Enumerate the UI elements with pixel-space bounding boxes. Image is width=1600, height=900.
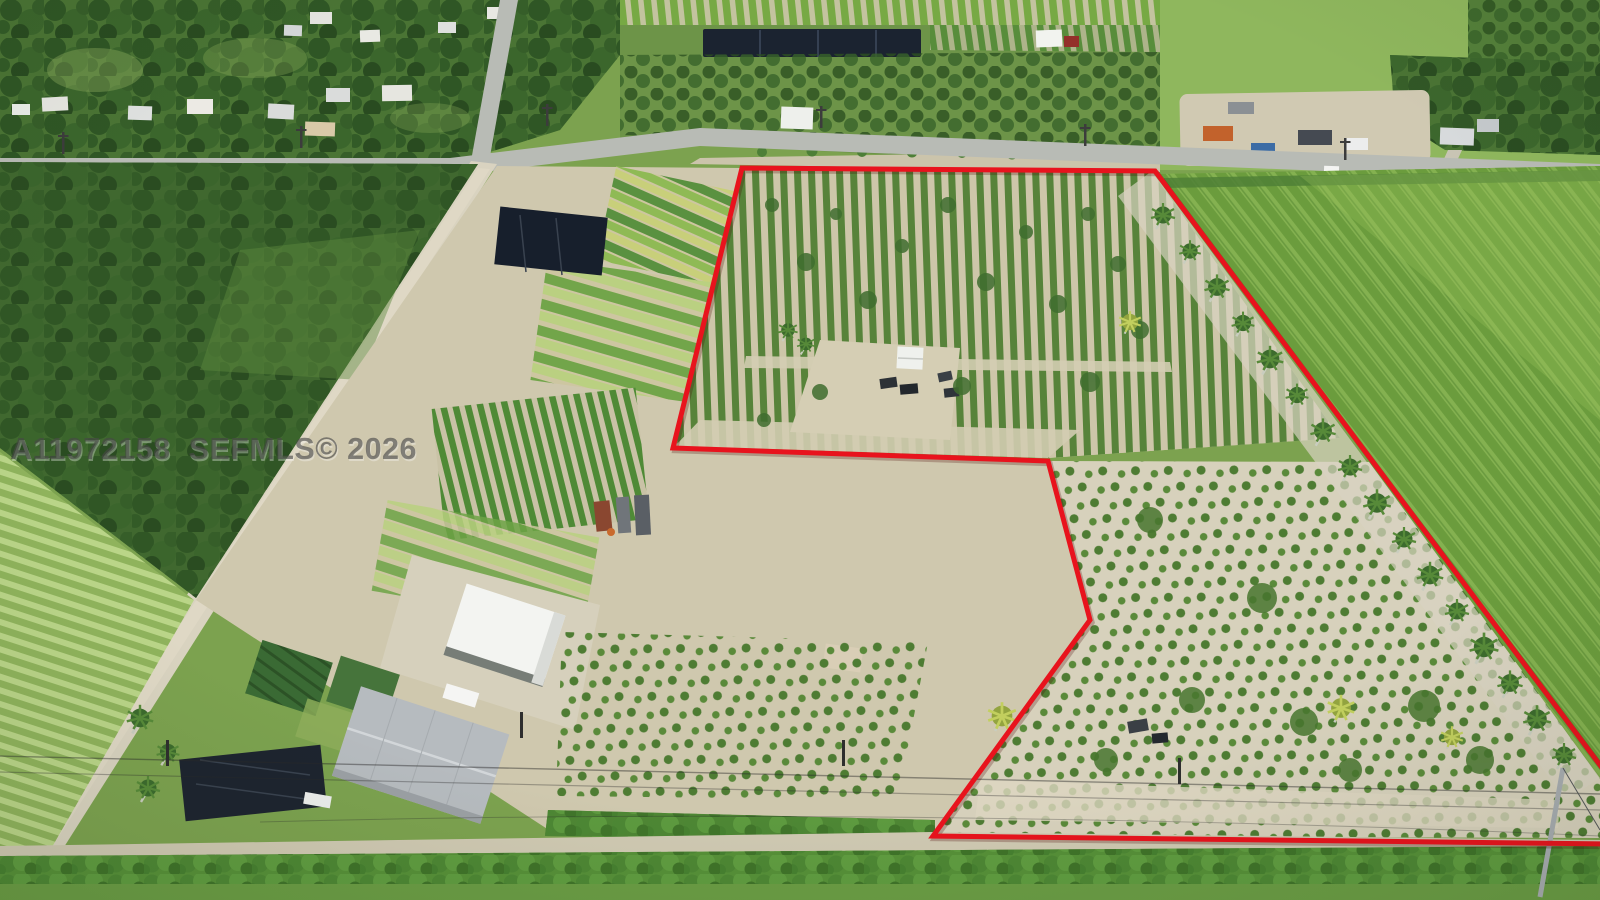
aerial-listing-photo: A11972158 SEFMLS© 2026 A11972158 SEFMLS©… [0,0,1600,900]
vignette-overlay [0,0,1600,900]
aerial-photo-canvas: A11972158 SEFMLS© 2026 A11972158 SEFMLS©… [0,0,1600,900]
